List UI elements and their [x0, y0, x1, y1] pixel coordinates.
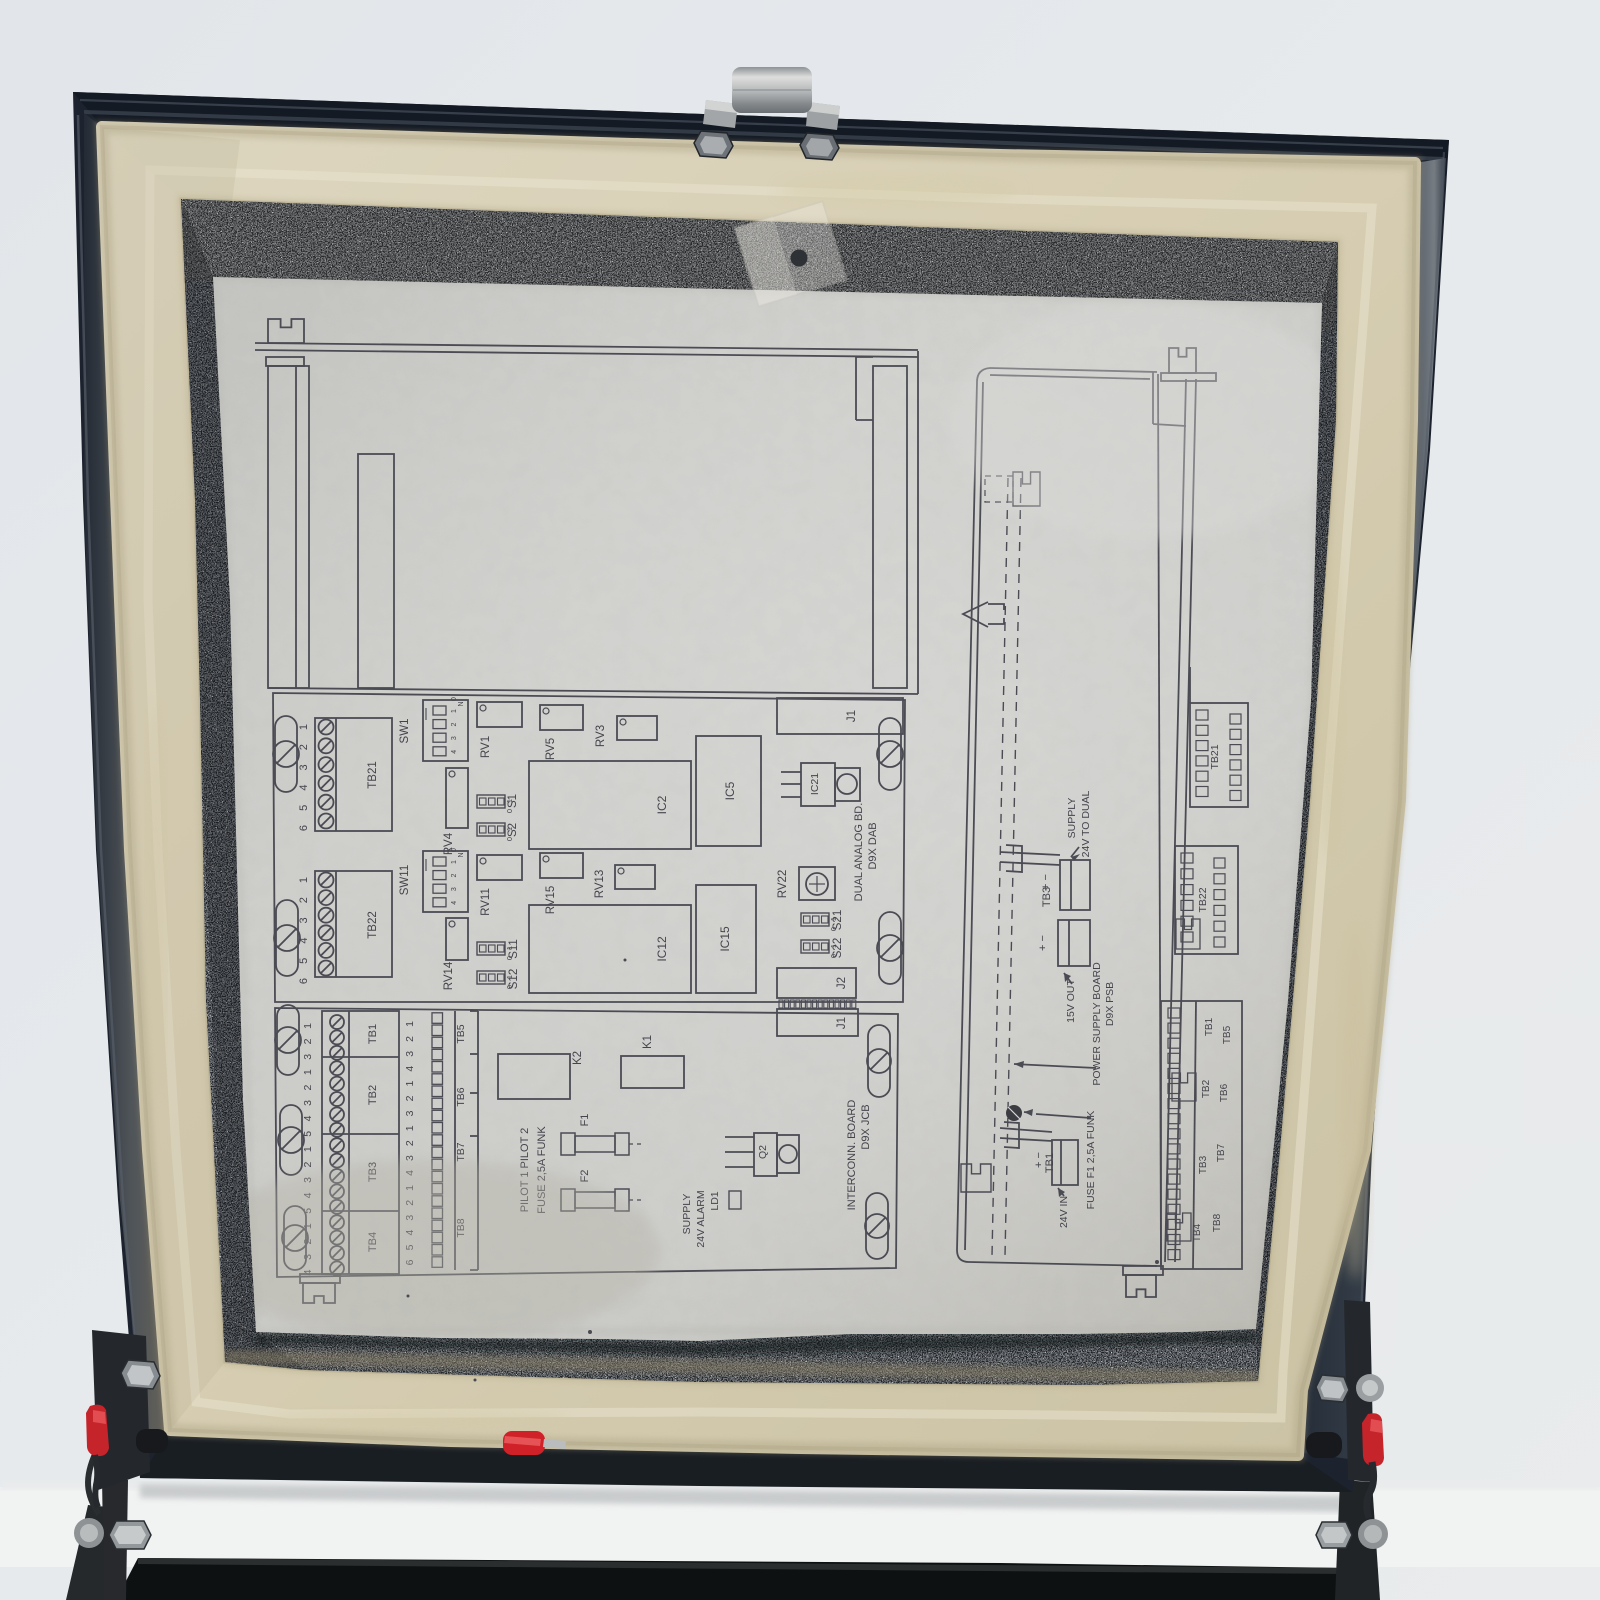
- svg-text:IC12: IC12: [655, 936, 669, 962]
- svg-text:5: 5: [298, 805, 310, 811]
- svg-text:SW11: SW11: [399, 865, 411, 895]
- svg-text:IC21: IC21: [809, 773, 821, 795]
- svg-text:3: 3: [298, 764, 310, 770]
- svg-text:RV14: RV14: [443, 961, 455, 990]
- svg-text:0: 0: [451, 697, 458, 701]
- svg-text:TB7: TB7: [1216, 1143, 1227, 1162]
- svg-text:1: 1: [298, 877, 310, 883]
- svg-text:4: 4: [451, 901, 458, 905]
- svg-text:3: 3: [451, 887, 458, 891]
- svg-text:24V ALARM: 24V ALARM: [695, 1190, 707, 1247]
- svg-text:J1: J1: [836, 1017, 848, 1029]
- svg-text:TB3: TB3: [1041, 887, 1053, 907]
- svg-text:0: 0: [505, 809, 514, 813]
- svg-text:LD1: LD1: [709, 1191, 721, 1210]
- svg-text:SUPPLY: SUPPLY: [681, 1194, 693, 1235]
- svg-text:6: 6: [298, 978, 310, 984]
- svg-text:3: 3: [404, 1155, 416, 1161]
- svg-text:D9X JCB: D9X JCB: [860, 1104, 872, 1149]
- svg-text:3: 3: [451, 736, 458, 740]
- svg-text:RV15: RV15: [545, 886, 557, 915]
- svg-text:2: 2: [302, 1085, 314, 1091]
- svg-text:3: 3: [302, 1100, 314, 1106]
- svg-text:TB1: TB1: [1044, 1153, 1056, 1173]
- svg-text:2: 2: [404, 1140, 416, 1146]
- svg-text:1: 1: [451, 860, 458, 864]
- svg-text:K2: K2: [572, 1051, 584, 1065]
- svg-text:3: 3: [298, 917, 310, 923]
- svg-text:TB8: TB8: [1212, 1213, 1223, 1232]
- svg-text:6: 6: [298, 825, 310, 831]
- svg-text:TB21: TB21: [1209, 744, 1221, 769]
- svg-text:DUAL ANALOG BD.: DUAL ANALOG BD.: [853, 803, 865, 902]
- svg-text:D9X DAB: D9X DAB: [867, 822, 879, 869]
- svg-text:24V TO DUAL: 24V TO DUAL: [1080, 790, 1092, 857]
- svg-text:TB3: TB3: [1198, 1155, 1209, 1174]
- svg-text:4: 4: [404, 1066, 416, 1072]
- svg-text:RV13: RV13: [594, 870, 606, 899]
- svg-text:TB1: TB1: [1204, 1017, 1215, 1036]
- svg-text:1: 1: [404, 1125, 416, 1131]
- svg-text:RV11: RV11: [480, 888, 492, 916]
- svg-text:2: 2: [298, 897, 310, 903]
- svg-text:RV3: RV3: [595, 725, 607, 747]
- svg-text:4: 4: [298, 785, 310, 791]
- svg-text:TB6: TB6: [455, 1087, 467, 1106]
- svg-text:3: 3: [302, 1054, 314, 1060]
- svg-text:1: 1: [302, 1146, 314, 1152]
- svg-text:2: 2: [298, 744, 310, 750]
- svg-text:J2: J2: [836, 977, 848, 989]
- svg-text:5: 5: [298, 958, 310, 964]
- svg-text:S12: S12: [508, 969, 520, 989]
- svg-text:S21: S21: [832, 910, 844, 930]
- svg-text:4: 4: [451, 750, 458, 754]
- svg-text:SW1: SW1: [399, 719, 411, 744]
- svg-text:S22: S22: [832, 938, 844, 958]
- svg-text:TB1: TB1: [367, 1024, 379, 1044]
- svg-text:TB2: TB2: [1201, 1079, 1212, 1098]
- svg-text:TB6: TB6: [1219, 1083, 1230, 1102]
- svg-text:TB7: TB7: [455, 1142, 467, 1161]
- svg-text:2: 2: [451, 723, 458, 727]
- svg-text:D9X PSB: D9X PSB: [1104, 982, 1116, 1026]
- svg-text:FUSE F1 2,5A FUNK: FUSE F1 2,5A FUNK: [1085, 1111, 1097, 1210]
- svg-text:1: 1: [302, 1069, 314, 1075]
- svg-text:2: 2: [302, 1162, 314, 1168]
- svg-text:N: N: [458, 701, 465, 706]
- svg-text:TB5: TB5: [455, 1024, 467, 1043]
- svg-text:INTERCONN. BOARD: INTERCONN. BOARD: [846, 1100, 858, 1211]
- svg-text:3: 3: [404, 1110, 416, 1116]
- svg-text:IC5: IC5: [723, 781, 737, 800]
- svg-text:TB22: TB22: [1197, 887, 1209, 912]
- svg-text:RV4: RV4: [443, 832, 455, 855]
- svg-text:K1: K1: [642, 1035, 654, 1049]
- svg-text:S1: S1: [507, 794, 519, 808]
- svg-text:IC2: IC2: [655, 795, 669, 814]
- svg-text:2: 2: [404, 1095, 416, 1101]
- svg-text:S2: S2: [507, 823, 519, 837]
- svg-text:TB5: TB5: [1222, 1025, 1233, 1044]
- svg-text:1: 1: [298, 724, 310, 730]
- svg-text:SUPPLY: SUPPLY: [1066, 798, 1078, 839]
- svg-text:TB4: TB4: [1192, 1223, 1203, 1242]
- svg-text:15V OUT: 15V OUT: [1065, 979, 1077, 1023]
- svg-text:J1: J1: [846, 710, 858, 722]
- svg-text:Q2: Q2: [757, 1145, 769, 1159]
- svg-text:4: 4: [302, 1115, 314, 1121]
- svg-text:1: 1: [302, 1023, 314, 1029]
- svg-text:RV5: RV5: [545, 738, 557, 760]
- svg-text:F2: F2: [579, 1170, 591, 1183]
- svg-text:N: N: [458, 852, 465, 857]
- svg-text:S11: S11: [508, 939, 520, 959]
- svg-text:RV1: RV1: [480, 736, 492, 758]
- svg-text:TB22: TB22: [367, 911, 379, 939]
- svg-text:1: 1: [404, 1081, 416, 1087]
- svg-text:TB2: TB2: [367, 1085, 379, 1105]
- svg-text:2: 2: [451, 874, 458, 878]
- svg-text:4: 4: [298, 938, 310, 944]
- svg-text:1: 1: [404, 1021, 416, 1027]
- svg-text:IC15: IC15: [718, 926, 732, 952]
- svg-text:3: 3: [404, 1051, 416, 1057]
- svg-text:2: 2: [302, 1038, 314, 1044]
- svg-text:24V IN: 24V IN: [1058, 1196, 1070, 1228]
- svg-text:F1: F1: [579, 1114, 591, 1127]
- svg-text:TB21: TB21: [367, 761, 379, 789]
- svg-text:2: 2: [404, 1036, 416, 1042]
- svg-text:1: 1: [451, 709, 458, 713]
- svg-text:RV22: RV22: [777, 870, 789, 899]
- svg-text:+ −: + −: [1037, 935, 1049, 951]
